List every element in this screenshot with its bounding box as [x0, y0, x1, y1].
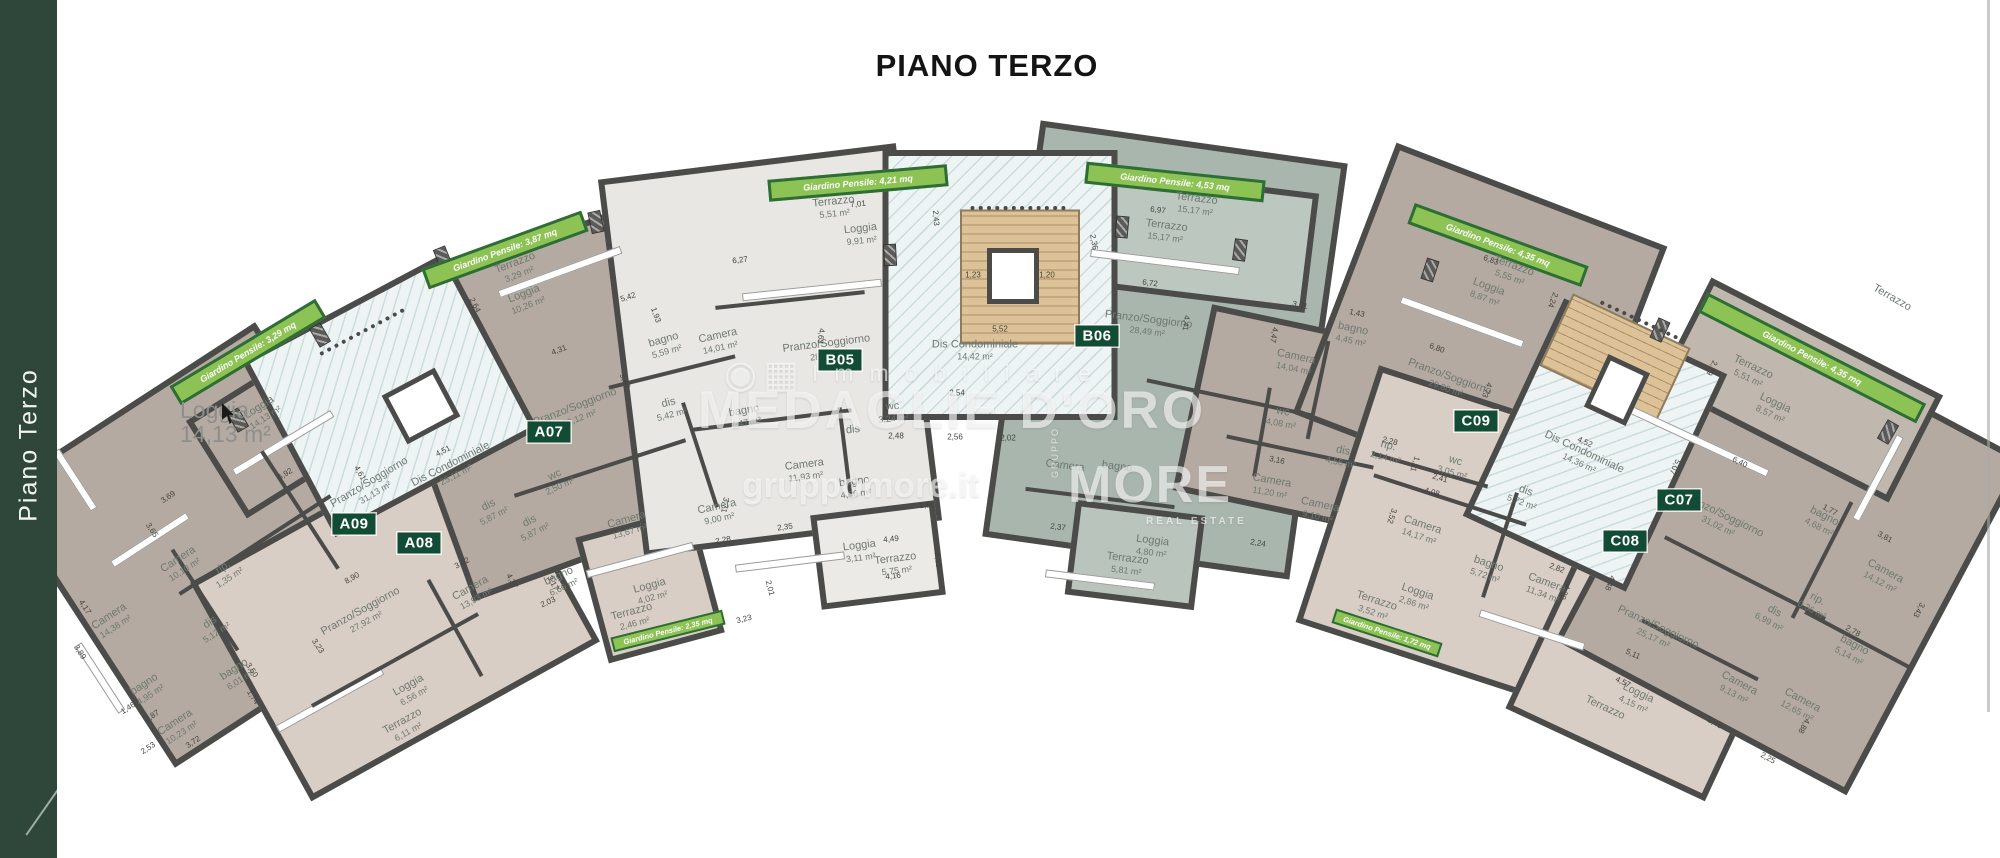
unit-badge[interactable]: C09 — [1454, 411, 1497, 432]
dimension-label: 1,20 — [1039, 271, 1055, 280]
floorplan-canvas[interactable]: Giardino Pensile: 3,29 mqGiardino Pensil… — [0, 0, 2000, 858]
dimension-label: 6,27 — [732, 255, 749, 266]
unit-badge[interactable]: B05 — [818, 350, 861, 371]
dimension-label: 1,86 — [919, 500, 935, 511]
unit-badge[interactable]: A09 — [332, 514, 375, 535]
dimension-label: 4,16 — [885, 571, 902, 582]
railing-dotted — [971, 206, 1066, 210]
unit-badge[interactable]: A07 — [527, 422, 570, 443]
tooltip-room-area: 14,13 m² — [180, 422, 271, 446]
dimension-label: 2,37 — [1050, 522, 1067, 533]
dimension-label: 2,13 — [933, 552, 944, 568]
room-name: dis — [845, 423, 860, 437]
unit-badge[interactable]: A08 — [397, 533, 440, 554]
room-label: wc3,24 m² — [877, 399, 909, 425]
room-label: Loggia3,11 m² — [842, 538, 878, 565]
dimension-label: 2,43 — [931, 210, 941, 226]
room-label: bagno4,86 m² — [838, 474, 871, 501]
dimension-label: 6,97 — [1150, 205, 1166, 216]
dimension-label: 4,49 — [883, 534, 899, 545]
dimension-label: 2,53 — [139, 740, 157, 756]
room-name: Dis Condominiale — [932, 339, 1018, 352]
dimension-label: 2,48 — [888, 432, 904, 441]
room-label: Terrazzo — [1871, 282, 1914, 314]
sidebar: Piano Terzo — [0, 0, 57, 858]
dimension-label: 2,54 — [949, 389, 965, 398]
dimension-label: 6,72 — [1142, 278, 1159, 289]
sidebar-floor-label: Piano Terzo — [14, 368, 43, 522]
elevator-shaft — [987, 248, 1039, 304]
page-title: PIANO TERZO — [876, 48, 1099, 84]
room-area: 14,42 m² — [932, 351, 1018, 361]
dimension-label: 4,63 — [816, 328, 827, 345]
room-label: Camera11,93 m² — [784, 456, 826, 484]
floorplan-page: Piano Terzo PIANO TERZO Giardino Pensile… — [0, 0, 2000, 858]
dimension-label: 2,02 — [1000, 434, 1016, 443]
dimension-label: 1,23 — [965, 271, 981, 280]
room-label: Loggia9,91 m² — [843, 221, 878, 247]
wall-pier — [1115, 215, 1130, 238]
dimension-label: 1,46 — [119, 700, 137, 716]
dimension-label: 4,41 — [1181, 315, 1192, 332]
dimension-label: 2,01 — [764, 579, 777, 596]
dimension-label: 7,01 — [850, 199, 866, 210]
room-label: dis — [845, 423, 860, 437]
unit-badge[interactable]: C08 — [1603, 531, 1646, 552]
unit-badge[interactable]: B06 — [1075, 326, 1118, 347]
image-edge-line — [1987, 0, 1990, 712]
wall-pier — [883, 244, 897, 267]
room-name: Terrazzo — [1871, 282, 1914, 314]
room-label: Dis Condominiale14,42 m² — [932, 339, 1018, 362]
dimension-label: 3,23 — [735, 613, 752, 626]
unit-badge[interactable]: C07 — [1657, 490, 1700, 511]
dimension-label: 2,56 — [947, 433, 963, 442]
room-hover-tooltip: Loggia 14,13 m² — [180, 398, 271, 446]
dimension-label: 5,52 — [992, 325, 1008, 334]
